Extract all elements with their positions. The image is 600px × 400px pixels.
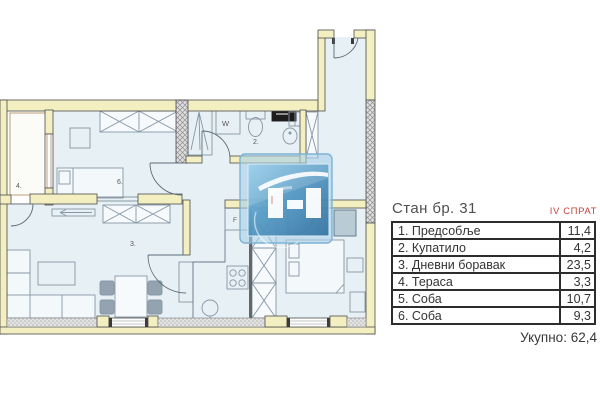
bedroom6-bed xyxy=(57,168,123,198)
bottom-wall xyxy=(0,327,375,334)
logo-block-right xyxy=(306,188,321,218)
room-area: 9,3 xyxy=(560,307,595,324)
bathroom-label: 2. xyxy=(253,139,259,146)
room-name: 2. Купатило xyxy=(392,239,560,256)
table-row: 6. Соба 9,3 xyxy=(392,307,595,324)
terrace-label: 4. xyxy=(16,183,22,190)
balcony-door-glazing xyxy=(109,318,148,327)
room-name: 4. Тераса xyxy=(392,273,560,290)
room-area: 11,4 xyxy=(560,222,595,239)
right-wall xyxy=(366,30,375,100)
hall-pier-concrete xyxy=(176,100,188,163)
room-name: 3. Дневни боравак xyxy=(392,256,560,273)
apartment-title: Стан бр. 31 xyxy=(392,200,477,217)
left-wall xyxy=(0,100,7,334)
room-area: 10,7 xyxy=(560,290,595,307)
table-row: 3. Дневни боравак 23,5 xyxy=(392,256,595,273)
fridge-label: F xyxy=(233,217,237,224)
room-area-table: 1. Предсобље 11,4 2. Купатило 4,2 3. Дне… xyxy=(391,221,596,325)
floor-plan-drawing: 4. 6. 3. 2. W F xyxy=(0,0,600,400)
room-name: 5. Соба xyxy=(392,290,560,307)
watermark-logo-icon xyxy=(240,154,332,248)
room5-cabinet xyxy=(334,210,356,236)
terrace-glazing xyxy=(45,134,53,188)
room-name: 1. Предсобље xyxy=(392,222,560,239)
room-area: 23,5 xyxy=(560,256,595,273)
living-wardrobe xyxy=(103,205,170,223)
logo-block-left xyxy=(268,188,283,218)
floorplan-page: 4. 6. 3. 2. W F Стан бр. 31 IV СПРАТ 1. … xyxy=(0,0,600,400)
bedroom6-wardrobe xyxy=(100,111,178,132)
total-value: 62,4 xyxy=(571,330,597,345)
total-label: Укупно: xyxy=(520,330,567,345)
entry-corridor-left-wall xyxy=(318,37,325,111)
floor-badge: IV СПРАТ xyxy=(550,206,597,217)
table-row: 1. Предсобље 11,4 xyxy=(392,222,595,239)
right-wall-concrete xyxy=(366,100,375,223)
top-wall xyxy=(0,100,318,111)
room5-bed xyxy=(286,240,344,293)
terrace-floor xyxy=(7,110,45,195)
room5-window-glazing xyxy=(287,318,330,327)
bedroom6-label: 6. xyxy=(117,179,123,186)
living-label: 3. xyxy=(130,241,136,248)
room-name: 6. Соба xyxy=(392,307,560,324)
table-row: 5. Соба 10,7 xyxy=(392,290,595,307)
logo-block-middle xyxy=(287,200,303,209)
room-area: 4,2 xyxy=(560,239,595,256)
room-area: 3,3 xyxy=(560,273,595,290)
washer-label: W xyxy=(222,119,230,128)
table-row: 2. Купатило 4,2 xyxy=(392,239,595,256)
table-row: 4. Тераса 3,3 xyxy=(392,273,595,290)
hall-wardrobe xyxy=(306,112,318,158)
total-area: Укупно: 62,4 xyxy=(520,330,597,345)
